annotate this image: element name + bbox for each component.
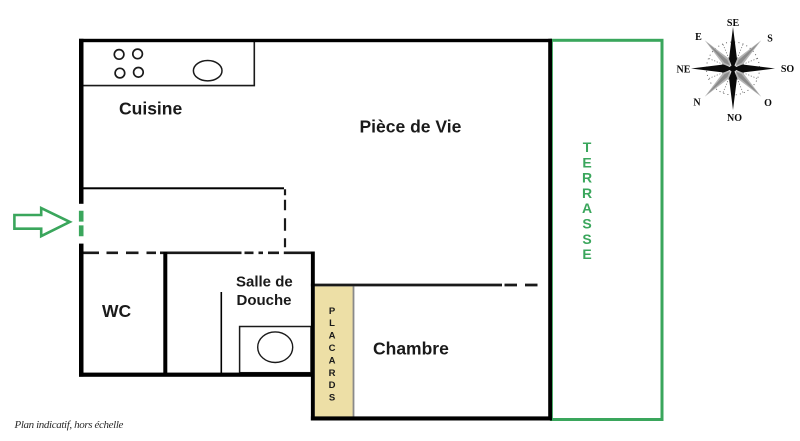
svg-text:C: C (329, 343, 336, 354)
svg-text:D: D (329, 380, 336, 391)
svg-text:Salle de: Salle de (236, 274, 293, 291)
svg-text:T: T (583, 139, 592, 155)
svg-text:S: S (767, 34, 773, 45)
svg-text:Pièce de Vie: Pièce de Vie (360, 117, 462, 137)
svg-text:P: P (329, 306, 336, 317)
svg-text:SE: SE (727, 18, 740, 29)
svg-text:L: L (329, 318, 335, 329)
svg-text:E: E (695, 32, 702, 43)
svg-text:O: O (764, 98, 772, 109)
svg-text:Cuisine: Cuisine (119, 99, 182, 119)
svg-text:SO: SO (781, 64, 795, 75)
svg-text:E: E (582, 154, 591, 170)
svg-text:S: S (329, 393, 335, 404)
svg-text:Douche: Douche (237, 292, 292, 309)
svg-text:Chambre: Chambre (373, 339, 449, 359)
svg-text:S: S (582, 231, 591, 247)
svg-text:N: N (693, 98, 701, 109)
svg-text:R: R (582, 170, 592, 186)
svg-text:A: A (329, 331, 336, 342)
svg-text:Plan indicatif, hors échelle: Plan indicatif, hors échelle (14, 419, 124, 431)
svg-text:E: E (582, 246, 591, 262)
svg-text:WC: WC (102, 301, 132, 321)
svg-text:NE: NE (677, 65, 691, 76)
svg-text:A: A (329, 355, 336, 366)
svg-text:A: A (582, 200, 592, 216)
svg-text:R: R (582, 185, 592, 201)
svg-text:NO: NO (727, 113, 742, 124)
svg-text:R: R (329, 368, 336, 379)
svg-text:S: S (582, 216, 591, 232)
